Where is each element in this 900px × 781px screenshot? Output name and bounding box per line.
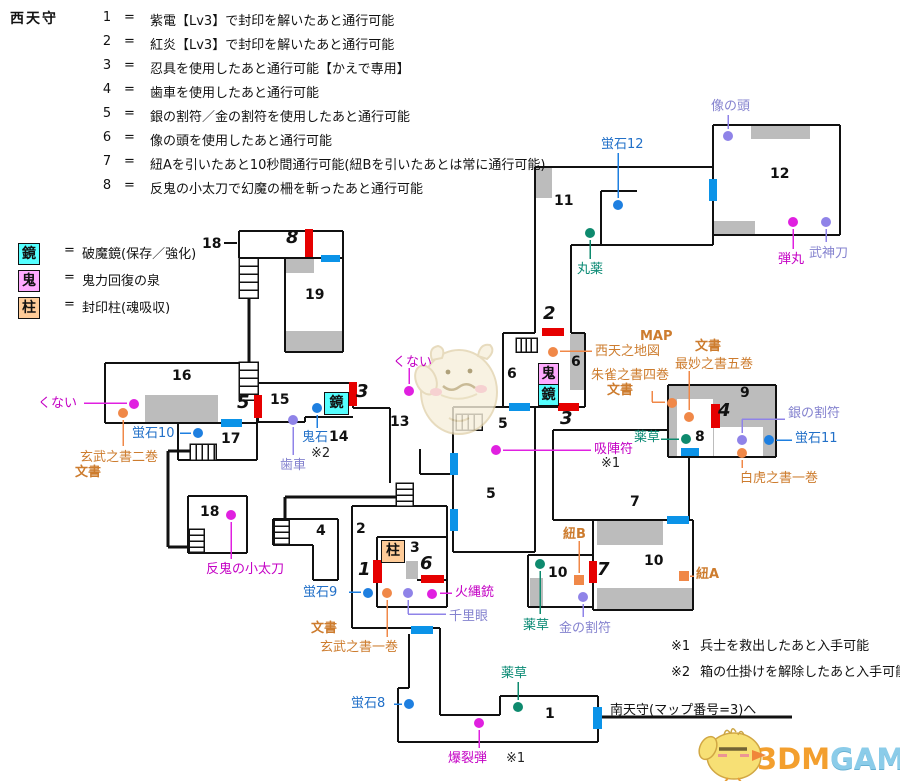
- item-dot-bushintou: [821, 217, 831, 227]
- item-dot-genbu-vol2: [118, 408, 128, 418]
- symbol-legend-row-oni: 鬼 = 鬼力回復の泉: [18, 270, 318, 292]
- item-label-zou-no-atama: 像の頭: [711, 99, 750, 114]
- item-label-hotaru10: 蛍石10: [132, 426, 175, 441]
- room-number-5: 5: [498, 416, 508, 432]
- item-label-hangi-kodachi: 反鬼の小太刀: [206, 562, 284, 577]
- map-symbol-box-鏡: 鏡: [324, 392, 349, 415]
- pillar-symbol: 柱: [18, 297, 40, 319]
- item-label-genbu-vol1: 文書: [311, 621, 337, 636]
- note-2: ※2箱の仕掛けを解除したあと入手可能: [671, 661, 900, 680]
- item-label-hinawaju: 火縄銃: [455, 585, 494, 600]
- item-dot-hotaru12: [613, 200, 623, 210]
- item-dot-saimyou-vol5: [684, 412, 694, 422]
- map-symbol-box-柱: 柱: [381, 540, 405, 563]
- gate-number-2: 2: [543, 303, 556, 324]
- item-label-kunai-west: くない: [38, 396, 77, 411]
- symbol-legend-row-pillar: 柱 = 封印柱(魂吸収): [18, 297, 318, 319]
- item-dot-hangi-kodachi: [226, 510, 236, 520]
- room-number-15: 15: [270, 392, 289, 408]
- item-dot-hotaru10: [193, 428, 203, 438]
- item-label-onigoku-ishi: 鬼石: [302, 430, 328, 445]
- item-label-hotaru9: 蛍石9: [303, 585, 337, 600]
- item-dot-byakko-vol1: [737, 448, 747, 458]
- item-label-himo-a: 紐A: [696, 567, 719, 582]
- item-label-yakusou-room1: 薬草: [501, 666, 527, 681]
- item-dot-hotaru8: [404, 699, 414, 709]
- item-label-kyujinfu: ※1: [601, 456, 620, 471]
- room-number-18: 18: [200, 504, 219, 520]
- room-number-5: 5: [486, 486, 496, 502]
- room-number-2: 2: [356, 521, 366, 537]
- room-number-19: 19: [305, 287, 324, 303]
- item-dot-gin-warifu: [737, 435, 747, 445]
- room-number-13: 13: [390, 414, 409, 430]
- item-label-seiten-map: MAP: [640, 329, 673, 344]
- item-label-saimyou-vol5: 文書: [695, 339, 721, 354]
- map-canvas: 西天守 1=紫電【Lv3】で封印を解いたあと通行可能 2=紅炎【Lv3】で封印を…: [0, 0, 900, 781]
- gate-number-4: 4: [718, 400, 731, 421]
- gate-number-5: 5: [237, 392, 250, 413]
- item-label-genbu-vol2: 玄武之書二巻: [80, 450, 158, 465]
- item-label-hotaru11: 蛍石11: [795, 431, 838, 446]
- gate-number-1: 1: [358, 559, 371, 580]
- item-dot-hotaru11: [764, 435, 774, 445]
- item-dot-seiten-map: [548, 347, 558, 357]
- room-number-11: 11: [554, 193, 573, 209]
- item-label-byakko-vol1: 白虎之書一巻: [740, 471, 818, 486]
- room-number-8: 8: [695, 429, 705, 445]
- item-label-bakuretsudan: 爆裂弾: [448, 751, 487, 766]
- item-label-suzaku-vol4: 朱雀之書四巻: [591, 368, 669, 383]
- item-dot-zou-no-atama: [723, 131, 733, 141]
- room-number-1: 1: [545, 706, 555, 722]
- item-dot-hinawaju: [427, 589, 437, 599]
- brand-3dm: 3DM: [757, 742, 830, 776]
- gate-number-3: 3: [356, 381, 369, 402]
- mirror-symbol: 鏡: [18, 243, 40, 265]
- item-label-senrigan: 千里眼: [449, 609, 488, 624]
- item-dot-yakusou-10: [535, 559, 545, 569]
- item-dot-kyujinfu: [491, 445, 501, 455]
- item-dot-senrigan: [403, 588, 413, 598]
- item-label-seiten-map: 西天之地図: [595, 344, 660, 359]
- room-number-18: 18: [202, 236, 221, 252]
- gate-number-3: 3: [560, 408, 573, 429]
- item-dot-himo-b: [574, 575, 584, 585]
- item-label-dangan: 弾丸: [778, 252, 804, 267]
- room-number-17: 17: [221, 431, 240, 447]
- room-number-6: 6: [571, 354, 581, 370]
- item-label-genbu-vol2: 文書: [75, 465, 101, 480]
- item-dot-suzaku-vol4: [667, 398, 677, 408]
- item-dot-ganyaku: [585, 228, 595, 238]
- room-number-4: 4: [316, 523, 326, 539]
- item-dot-yakusou-room1: [513, 702, 523, 712]
- item-label-kunai-center: くない: [393, 355, 432, 370]
- item-dot-kunai-center: [404, 386, 414, 396]
- item-label-yakusou-10: 薬草: [523, 618, 549, 633]
- gate-number-8: 8: [286, 227, 299, 248]
- item-dot-bakuretsudan: [474, 718, 484, 728]
- item-dot-himo-a: [679, 571, 689, 581]
- page-title: 西天守: [10, 8, 58, 28]
- gate-number-7: 7: [597, 559, 610, 580]
- exit-label: 南天守(マップ番号=3)へ: [610, 699, 756, 718]
- room-number-16: 16: [172, 368, 191, 384]
- oni-symbol: 鬼: [18, 270, 40, 292]
- item-label-hotaru12: 蛍石12: [601, 137, 644, 152]
- brand-watermark: 3DMGAME: [757, 742, 900, 776]
- room-number-14: 14: [329, 429, 348, 445]
- room-number-10: 10: [548, 565, 567, 581]
- gate-number-6: 6: [420, 553, 433, 574]
- room-number-7: 7: [630, 494, 640, 510]
- item-label-gin-warifu: 銀の割符: [788, 406, 840, 421]
- item-label-genbu-vol1: 玄武之書一巻: [320, 640, 398, 655]
- item-label-suzaku-vol4: 文書: [607, 383, 633, 398]
- room-number-9: 9: [740, 385, 750, 401]
- item-dot-dangan: [788, 217, 798, 227]
- item-dot-yakusou-8: [681, 434, 691, 444]
- map-symbol-box-鬼: 鬼: [538, 363, 559, 386]
- room-number-12: 12: [770, 166, 789, 182]
- brand-game: GAME: [830, 742, 900, 776]
- note-1: ※1兵士を救出したあと入手可能: [671, 635, 869, 654]
- item-label-bushintou: 武神刀: [809, 246, 848, 261]
- item-label-onigoku-ishi: ※2: [311, 446, 330, 461]
- item-dot-kunai-west: [129, 399, 139, 409]
- item-dot-kin-warifu: [578, 592, 588, 602]
- item-label-yakusou-8: 薬草: [634, 430, 660, 445]
- item-label-haguruma: 歯車: [280, 458, 306, 473]
- room-number-3: 3: [410, 540, 420, 556]
- item-dot-haguruma: [288, 415, 298, 425]
- item-dot-onigoku-ishi: [312, 403, 322, 413]
- room-number-6: 6: [507, 366, 517, 382]
- item-label-kin-warifu: 金の割符: [559, 621, 611, 636]
- room-number-10: 10: [644, 553, 663, 569]
- map-symbol-box-鏡: 鏡: [538, 384, 559, 406]
- item-label-bakuretsudan: ※1: [506, 751, 525, 766]
- item-label-kyujinfu: 吸陣符: [594, 442, 633, 457]
- item-dot-hotaru9: [363, 588, 373, 598]
- item-label-ganyaku: 丸薬: [577, 262, 603, 277]
- item-label-himo-b: 紐B: [563, 527, 586, 542]
- item-label-hotaru8: 蛍石8: [351, 696, 385, 711]
- item-dot-genbu-vol1: [382, 588, 392, 598]
- symbol-legend-row-mirror: 鏡 = 破魔鏡(保存／強化): [18, 243, 318, 265]
- item-label-saimyou-vol5: 最妙之書五巻: [675, 357, 753, 372]
- chick-watermark: [696, 729, 766, 781]
